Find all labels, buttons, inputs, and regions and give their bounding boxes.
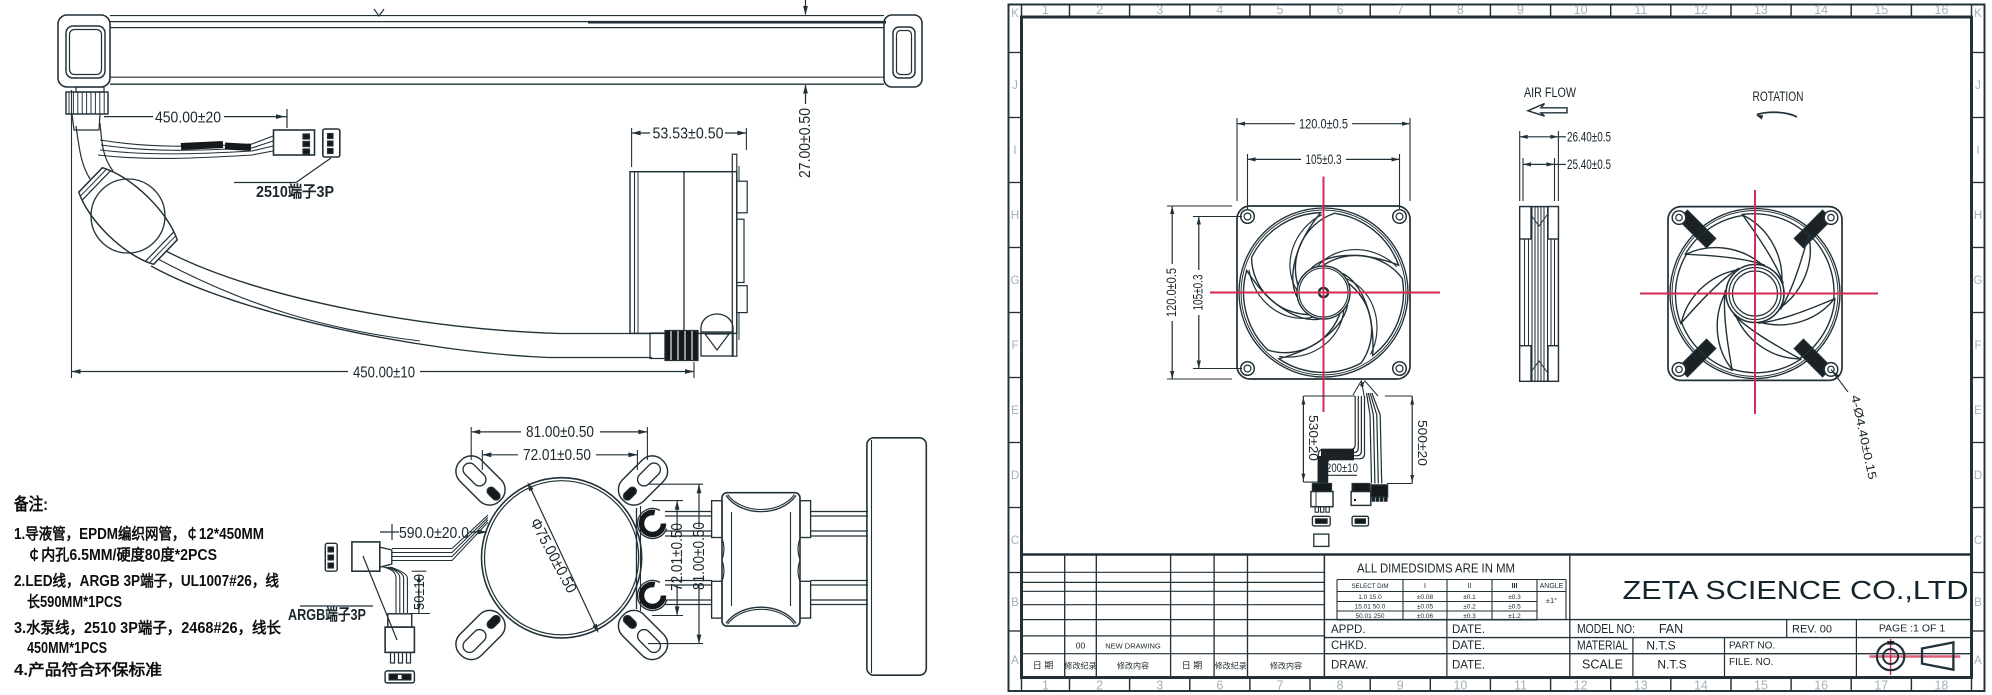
svg-text:00: 00	[1076, 641, 1086, 651]
svg-text:10: 10	[1574, 3, 1588, 17]
svg-text:ROTATION: ROTATION	[1753, 89, 1804, 104]
svg-text:450.00±20: 450.00±20	[155, 110, 221, 127]
svg-text:DATE.: DATE.	[1452, 624, 1485, 636]
svg-text:D: D	[1974, 470, 1982, 482]
svg-text:4: 4	[1216, 3, 1223, 17]
svg-text:B: B	[1974, 597, 1982, 609]
svg-text:I: I	[1013, 145, 1016, 157]
svg-text:16: 16	[1934, 3, 1948, 17]
svg-text:III: III	[1512, 583, 1518, 590]
svg-text:18: 18	[1934, 679, 1948, 693]
svg-text:J: J	[1012, 80, 1018, 92]
svg-text:MODEL NO:: MODEL NO:	[1577, 622, 1635, 636]
svg-text:A: A	[1974, 655, 1982, 667]
svg-text:长590MM*1PCS: 长590MM*1PCS	[27, 592, 122, 611]
svg-text:500±20: 500±20	[1415, 420, 1429, 466]
svg-text:13: 13	[1634, 679, 1648, 693]
svg-text:备注:: 备注:	[13, 494, 48, 514]
svg-text:72.01±0.50: 72.01±0.50	[523, 447, 591, 464]
svg-text:120.0±0.5: 120.0±0.5	[1164, 268, 1179, 317]
svg-text:27.00±0.50: 27.00±0.50	[797, 108, 814, 178]
svg-text:120.0±0.5: 120.0±0.5	[1299, 117, 1348, 132]
svg-text:6: 6	[1337, 3, 1344, 17]
svg-text:ARGB端子3P: ARGB端子3P	[288, 605, 366, 624]
svg-text:FILE. NO.: FILE. NO.	[1729, 657, 1773, 668]
svg-text:14: 14	[1814, 3, 1828, 17]
svg-text:K: K	[1011, 8, 1019, 20]
svg-text:CHKD.: CHKD.	[1331, 640, 1367, 652]
svg-text:±0.1: ±0.1	[1463, 594, 1476, 601]
svg-text:450.00±10: 450.00±10	[353, 365, 415, 382]
svg-text:105±0.3: 105±0.3	[1306, 152, 1342, 167]
svg-text:6: 6	[1216, 679, 1223, 693]
svg-text:17: 17	[1874, 679, 1888, 693]
svg-text:±1°: ±1°	[1546, 596, 1557, 605]
svg-text:修改内容: 修改内容	[1117, 661, 1149, 671]
svg-text:1: 1	[1042, 3, 1049, 17]
svg-text:B: B	[1011, 597, 1019, 609]
svg-text:9: 9	[1397, 679, 1404, 693]
svg-text:AIR FLOW: AIR FLOW	[1524, 85, 1576, 100]
svg-text:G: G	[1011, 275, 1020, 287]
svg-text:E: E	[1011, 405, 1019, 417]
svg-text:50±10: 50±10	[411, 574, 428, 610]
svg-text:25.40±0.5: 25.40±0.5	[1567, 157, 1611, 172]
svg-text:81.00±0.50: 81.00±0.50	[526, 424, 594, 441]
svg-text:3: 3	[1156, 679, 1163, 693]
svg-text:2.LED线，ARGB 3P端子，UL1007#26，线: 2.LED线，ARGB 3P端子，UL1007#26，线	[14, 571, 279, 590]
svg-text:5: 5	[1277, 3, 1284, 17]
svg-text:K: K	[1974, 8, 1982, 20]
svg-text:DATE.: DATE.	[1452, 660, 1485, 672]
svg-text:2: 2	[1096, 679, 1103, 693]
svg-text:N.T.S: N.T.S	[1646, 639, 1675, 653]
svg-text:2: 2	[1096, 3, 1103, 17]
svg-text:G: G	[1974, 275, 1983, 287]
svg-text:200±10: 200±10	[1326, 461, 1358, 475]
svg-text:72.01±0.50: 72.01±0.50	[669, 523, 686, 591]
svg-text:ZETA SCIENCE CO.,LTD: ZETA SCIENCE CO.,LTD	[1623, 575, 1969, 605]
svg-text:530±20: 530±20	[1306, 415, 1320, 461]
svg-text:3: 3	[1156, 3, 1163, 17]
svg-text:±0.5: ±0.5	[1508, 603, 1521, 610]
svg-text:7: 7	[1277, 679, 1284, 693]
svg-text:8: 8	[1457, 3, 1464, 17]
svg-text:11: 11	[1634, 3, 1647, 17]
svg-text:修改纪录: 修改纪录	[1215, 661, 1247, 671]
svg-text:DATE.: DATE.	[1452, 640, 1485, 652]
svg-text:±0.05: ±0.05	[1417, 603, 1434, 610]
svg-text:￠内孔6.5MM/硬度80度*2PCS: ￠内孔6.5MM/硬度80度*2PCS	[27, 545, 217, 564]
svg-text:FAN: FAN	[1659, 622, 1683, 636]
svg-text:A: A	[1011, 655, 1019, 667]
svg-text:H: H	[1974, 210, 1982, 222]
svg-text:MATERIAL: MATERIAL	[1577, 639, 1628, 653]
svg-text:SCALE: SCALE	[1582, 658, 1623, 672]
svg-text:C: C	[1011, 535, 1019, 547]
svg-text:H: H	[1011, 210, 1019, 222]
svg-text:15: 15	[1874, 3, 1888, 17]
svg-text:13: 13	[1754, 3, 1768, 17]
svg-text:I: I	[1424, 583, 1426, 590]
svg-text:450MM*1PCS: 450MM*1PCS	[27, 640, 107, 657]
svg-text:12: 12	[1574, 679, 1588, 693]
svg-text:N.T.S: N.T.S	[1657, 658, 1686, 672]
svg-text:C: C	[1974, 535, 1982, 547]
svg-text:E: E	[1974, 405, 1982, 417]
svg-text:15: 15	[1754, 679, 1768, 693]
svg-text:日 期: 日 期	[1033, 661, 1054, 671]
svg-text:10: 10	[1453, 679, 1467, 693]
svg-text:±0.08: ±0.08	[1417, 594, 1434, 601]
svg-text:PAGE :1 OF 1: PAGE :1 OF 1	[1879, 623, 1945, 635]
svg-text:8: 8	[1337, 679, 1344, 693]
svg-text:2510端子3P: 2510端子3P	[256, 182, 334, 201]
svg-text:日 期: 日 期	[1182, 661, 1203, 671]
svg-text:11: 11	[1514, 679, 1527, 693]
svg-text:PART NO.: PART NO.	[1729, 641, 1775, 652]
svg-text:7: 7	[1397, 3, 1404, 17]
svg-text:F: F	[1974, 340, 1981, 352]
svg-text:16: 16	[1814, 679, 1828, 693]
svg-text:1.导液管，EPDM编织网管，￠12*450MM: 1.导液管，EPDM编织网管，￠12*450MM	[14, 524, 264, 543]
svg-text:1: 1	[1042, 679, 1049, 693]
svg-text:4.产品符合环保标准: 4.产品符合环保标准	[14, 660, 163, 679]
svg-text:NEW DRAWING: NEW DRAWING	[1105, 642, 1161, 651]
svg-text:修改内容: 修改内容	[1270, 661, 1302, 671]
svg-text:12: 12	[1694, 3, 1708, 17]
svg-text:±0.2: ±0.2	[1463, 603, 1476, 610]
svg-text:26.40±0.5: 26.40±0.5	[1567, 130, 1611, 145]
svg-text:9: 9	[1517, 3, 1524, 17]
svg-text:SELECT DIM: SELECT DIM	[1351, 583, 1388, 590]
svg-text:J: J	[1975, 80, 1981, 92]
svg-text:1.0 15.0: 1.0 15.0	[1358, 594, 1382, 601]
svg-text:D: D	[1011, 470, 1019, 482]
svg-text:81.00±0.50: 81.00±0.50	[691, 522, 708, 590]
svg-text:53.53±0.50: 53.53±0.50	[653, 126, 724, 143]
svg-text:590.0±20.0: 590.0±20.0	[399, 525, 469, 542]
svg-text:±0.3: ±0.3	[1508, 594, 1521, 601]
svg-text:ANGLE: ANGLE	[1540, 583, 1564, 590]
svg-text:APPD.: APPD.	[1331, 624, 1366, 636]
svg-text:15.01 50.0: 15.01 50.0	[1355, 603, 1386, 610]
svg-text:修改纪录: 修改纪录	[1065, 661, 1097, 671]
svg-text:14: 14	[1694, 679, 1708, 693]
svg-text:DRAW.: DRAW.	[1331, 660, 1368, 672]
svg-text:3.水泵线，2510 3P端子，2468#26，线长: 3.水泵线，2510 3P端子，2468#26，线长	[14, 618, 281, 637]
svg-text:105±0.3: 105±0.3	[1191, 275, 1206, 311]
svg-text:REV. 00: REV. 00	[1792, 624, 1832, 636]
svg-text:F: F	[1011, 340, 1018, 352]
svg-text:ALL DIMEDSIDMS ARE IN MM: ALL DIMEDSIDMS ARE IN MM	[1357, 561, 1515, 576]
svg-text:I: I	[1976, 145, 1979, 157]
svg-text:II: II	[1468, 583, 1472, 590]
